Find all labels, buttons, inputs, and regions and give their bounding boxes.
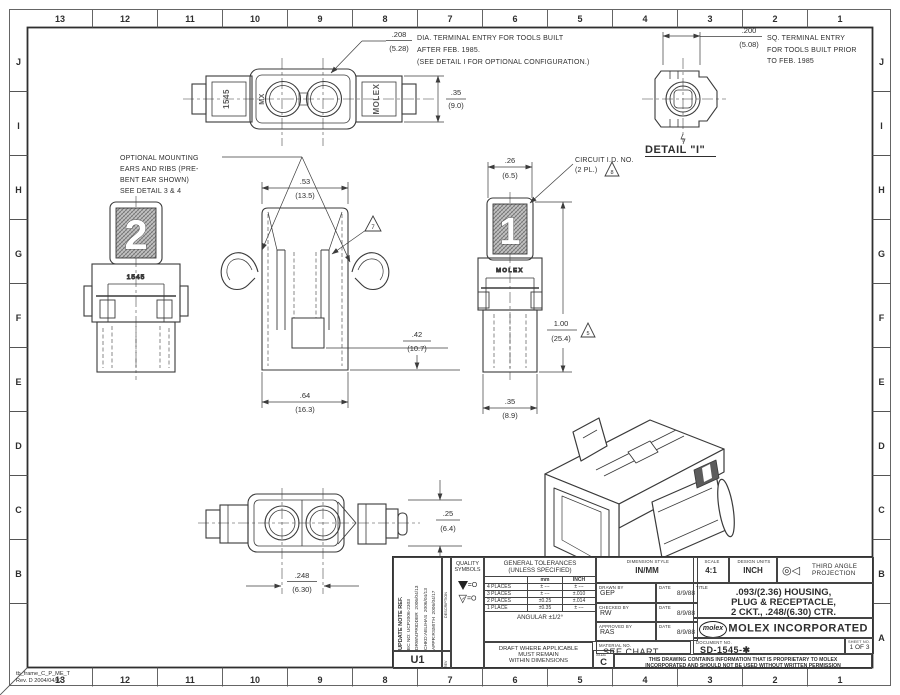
sheet-no: SHEET NO. 1 OF 3	[845, 638, 874, 654]
svg-text:J: J	[16, 57, 21, 67]
right-view: 1 MOLEX	[478, 192, 542, 380]
material-no: MATERIAL NO. SEE CHART	[596, 641, 691, 654]
dim-53: .53 (13.5)	[262, 177, 348, 204]
svg-text:OPTIONAL MOUNTING: OPTIONAL MOUNTING	[120, 155, 199, 162]
dim-26: .26 (6.5)	[488, 156, 532, 198]
detail-i-view	[642, 58, 726, 144]
update-note-title: UPDATE NOTE REF.	[397, 560, 406, 650]
svg-text:(SEE DETAIL I FOR OPTIONAL CON: (SEE DETAIL I FOR OPTIONAL CONFIGURATION…	[417, 59, 590, 66]
svg-text:(6.30): (6.30)	[292, 585, 312, 594]
svg-text:3: 3	[707, 675, 712, 685]
svg-text:B: B	[15, 569, 22, 579]
svg-text:(16.3): (16.3)	[295, 405, 315, 414]
svg-text:I: I	[17, 121, 20, 131]
svg-text:8: 8	[382, 675, 387, 685]
svg-text:.248: .248	[295, 571, 310, 580]
stamp-molex: MOLEX	[372, 83, 381, 114]
note-dia-entry: .208 (5.28) DIA. TERMINAL ENTRY FOR TOOL…	[331, 30, 590, 73]
svg-text:11: 11	[185, 14, 195, 24]
svg-text:AFTER FEB. 1985.: AFTER FEB. 1985.	[417, 47, 480, 54]
svg-text:10: 10	[250, 14, 260, 24]
dimension-style: DIMENSION STYLE IN/MM	[596, 557, 698, 583]
draft-symbol-filled-icon	[458, 581, 468, 590]
svg-text:SQ. TERMINAL ENTRY: SQ. TERMINAL ENTRY	[767, 35, 845, 42]
svg-text:12: 12	[120, 675, 130, 685]
svg-text:BENT EAR SHOWN): BENT EAR SHOWN)	[120, 177, 189, 184]
svg-text:J: J	[879, 57, 884, 67]
svg-text:5: 5	[577, 675, 582, 685]
angular-tolerance: ANGULAR ±1/2°	[485, 611, 595, 623]
checked-date: DATE 8/9/88	[656, 603, 698, 622]
draft-symbol-open-icon: ▽✓	[458, 594, 466, 604]
general-tolerances: GENERAL TOLERANCES (UNLESS SPECIFIED) mm…	[484, 557, 596, 642]
svg-text:.200: .200	[742, 26, 757, 35]
update-drwn: DRWN:PRIDDER 2006/04/13	[414, 560, 423, 650]
svg-text:(2 PL.): (2 PL.)	[575, 167, 597, 174]
flag-slot: 7	[332, 216, 381, 254]
projection-cell: ◎◁ THIRD ANGLE PROJECTION	[777, 557, 874, 583]
dim-248: .248 (6.30)	[246, 571, 359, 594]
svg-text:12: 12	[120, 14, 130, 24]
drawing-sheet: 13121110987654321 13121110987654321 JIHG…	[0, 0, 900, 695]
svg-text:1: 1	[837, 14, 842, 24]
svg-text:F: F	[16, 313, 22, 323]
svg-text:4: 4	[642, 14, 647, 24]
svg-text:(6.5): (6.5)	[502, 171, 518, 180]
svg-text:7: 7	[371, 225, 375, 231]
svg-text:(9.0): (9.0)	[448, 101, 464, 110]
svg-text:2: 2	[772, 675, 777, 685]
rev-value: U1	[410, 654, 424, 666]
svg-text:D: D	[878, 441, 885, 451]
svg-text:(5.08): (5.08)	[739, 40, 759, 49]
svg-text:8: 8	[610, 170, 613, 176]
svg-text:SEE DETAIL 3 & 4: SEE DETAIL 3 & 4	[120, 188, 181, 195]
svg-text:(6.4): (6.4)	[440, 524, 456, 533]
svg-text:7: 7	[447, 14, 452, 24]
top-view: 1545 MX MOLEX	[183, 58, 434, 146]
svg-text:(13.5): (13.5)	[295, 191, 315, 200]
svg-text:1.00: 1.00	[554, 319, 569, 328]
svg-text:7: 7	[447, 675, 452, 685]
ear-right-inner	[358, 259, 383, 280]
drawn-by: DRAWN BY GEP	[596, 583, 656, 603]
note-circuit-id: CIRCUIT I.D. NO. (2 PL.) 8	[530, 157, 634, 203]
svg-text:tb_frame_C_P_ME_T: tb_frame_C_P_ME_T	[16, 671, 71, 677]
svg-text:10: 10	[250, 675, 260, 685]
svg-text:C: C	[15, 505, 22, 515]
svg-text:.35: .35	[451, 88, 461, 97]
svg-text:.26: .26	[505, 156, 515, 165]
svg-text:CIRCUIT I.D. NO.: CIRCUIT I.D. NO.	[575, 157, 634, 164]
rev-cell: U1	[393, 651, 442, 669]
detail-label: DETAIL "I"	[645, 144, 705, 156]
svg-text:9: 9	[317, 675, 322, 685]
molex-logo: molex	[699, 621, 727, 638]
front-view	[221, 208, 389, 370]
update-note-column: UPDATE NOTE REF. EC NO: UCP2006-2303 DRW…	[393, 557, 442, 651]
approved-date: DATE 8/9/88	[656, 622, 698, 641]
left-view: 2 1545	[84, 196, 188, 380]
right-view-molex: MOLEX	[496, 268, 524, 274]
svg-text:.53: .53	[300, 177, 310, 186]
svg-text:TO FEB. 1985: TO FEB. 1985	[767, 58, 814, 65]
svg-text:G: G	[878, 249, 885, 259]
hidden-lines	[494, 314, 526, 368]
svg-text:(8.9): (8.9)	[502, 411, 518, 420]
svg-text:A: A	[878, 633, 885, 643]
proprietary-note: THIS DRAWING CONTAINS INFORMATION THAT I…	[614, 654, 872, 669]
svg-text:FOR TOOLS BUILT PRIOR: FOR TOOLS BUILT PRIOR	[767, 47, 857, 54]
svg-text:.64: .64	[300, 391, 310, 400]
svg-text:DIA. TERMINAL ENTRY FOR TOOLS: DIA. TERMINAL ENTRY FOR TOOLS BUILT	[417, 35, 564, 42]
svg-text:.35: .35	[505, 397, 515, 406]
svg-text:.25: .25	[443, 509, 453, 518]
approved-by: APPROVED BY RAS	[596, 622, 656, 641]
svg-text:C: C	[878, 505, 885, 515]
svg-text:D: D	[15, 441, 22, 451]
svg-text:E: E	[15, 377, 21, 387]
update-appr: APPR:RSMITH 2006/04/17	[431, 560, 440, 650]
ear-left-inner	[227, 259, 252, 280]
left-view-1545: 1545	[127, 274, 145, 281]
document-no: DOCUMENT NO. SD-1545-✱	[693, 638, 845, 654]
svg-text:2: 2	[772, 14, 777, 24]
quality-symbols: QUALITY SYMBOLS =O ▽✓=O	[451, 557, 484, 669]
description-column: DESCRIPTION	[442, 557, 451, 651]
svg-text:5: 5	[586, 331, 589, 337]
company-cell: molex MOLEX INCORPORATED	[693, 618, 874, 638]
stamp-1545: 1545	[222, 89, 231, 109]
svg-text:(5.28): (5.28)	[389, 44, 409, 53]
update-ec-no: EC NO: UCP2006-2303	[406, 560, 415, 650]
stamp-mx: MX	[259, 93, 266, 105]
scale-cell: SCALE 4:1	[693, 557, 729, 583]
svg-text:F: F	[879, 313, 885, 323]
title-block: UPDATE NOTE REF. EC NO: UCP2006-2303 DRW…	[392, 556, 873, 668]
dim-64: .64 (16.3)	[262, 372, 348, 414]
svg-text:I: I	[880, 121, 883, 131]
svg-text:13: 13	[55, 14, 65, 24]
svg-text:4: 4	[642, 675, 647, 685]
projection-icon: ◎◁	[782, 564, 800, 577]
svg-text:8: 8	[382, 14, 387, 24]
svg-text:Rev. D 2004/04/02: Rev. D 2004/04/02	[16, 678, 62, 684]
svg-text:11: 11	[185, 675, 195, 685]
svg-text:E: E	[878, 377, 884, 387]
drawn-date: DATE 8/9/88	[656, 583, 698, 603]
circuit-number-1: 1	[499, 211, 520, 253]
svg-text:H: H	[878, 185, 885, 195]
dim-100: 1.00 (25.4) 5	[535, 202, 595, 372]
circuit-number-2: 2	[124, 211, 147, 258]
svg-text:.208: .208	[392, 30, 407, 39]
update-chkd: CHKD:AELIHAS 2006/04/13	[423, 560, 432, 650]
svg-text:9: 9	[317, 14, 322, 24]
svg-text:H: H	[15, 185, 22, 195]
svg-text:EARS AND RIBS (PRE-: EARS AND RIBS (PRE-	[120, 166, 199, 173]
svg-text:5: 5	[577, 14, 582, 24]
dim-42: .42 (10.7)	[326, 330, 460, 370]
dim-35-89: .35 (8.9)	[483, 374, 537, 420]
drawing-title: TITLE .093/(2.36) HOUSING, PLUG & RECEPT…	[693, 583, 874, 618]
checked-by: CHECKED BY RW	[596, 603, 656, 622]
draft-note: DRAFT WHERE APPLICABLE MUST REMAIN WITHI…	[484, 642, 593, 669]
design-units: DESIGN UNITS INCH	[729, 557, 777, 583]
note-sq-entry: .200 (5.08) SQ. TERMINAL ENTRY FOR TOOLS…	[645, 26, 857, 157]
svg-text:G: G	[15, 249, 22, 259]
svg-text:(25.4): (25.4)	[551, 334, 571, 343]
rev-label-cell: REV	[442, 651, 451, 669]
svg-text:3: 3	[707, 14, 712, 24]
svg-text:6: 6	[512, 675, 517, 685]
dim-25: .25 (6.4)	[408, 480, 462, 566]
svg-text:6: 6	[512, 14, 517, 24]
svg-text:B: B	[878, 569, 885, 579]
svg-text:1: 1	[837, 675, 842, 685]
